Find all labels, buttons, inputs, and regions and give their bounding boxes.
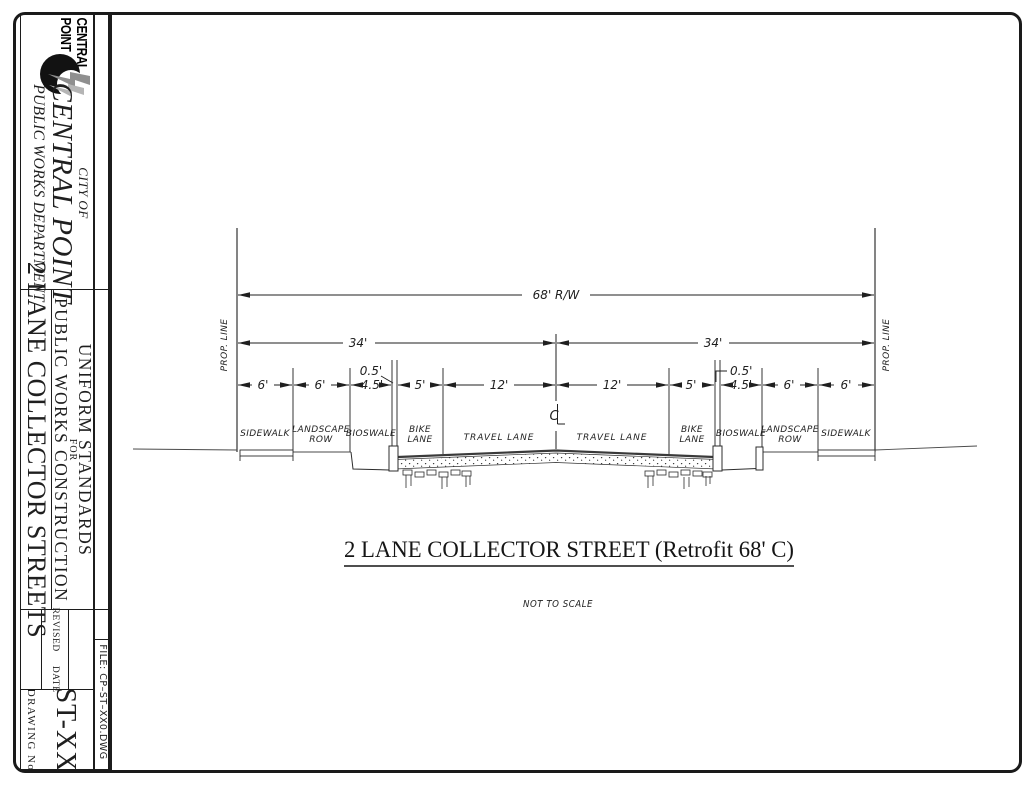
road-section bbox=[389, 446, 763, 471]
zone-label: SIDEWALK bbox=[240, 429, 290, 439]
centerline-symbol: C bbox=[549, 409, 559, 424]
bioswale-wall-right bbox=[756, 447, 763, 470]
chain-dim-9: 6' bbox=[841, 378, 852, 392]
dim-curb-right: 0.5' bbox=[730, 364, 752, 378]
chain-dim-3: 5' bbox=[415, 378, 426, 392]
zone-label: LANDSCAPE bbox=[761, 425, 819, 435]
dim-curb-left: 0.5' bbox=[360, 364, 382, 378]
zone-label: BIOSWALE bbox=[716, 429, 766, 439]
zone-label: BIOSWALE bbox=[346, 429, 396, 439]
cross-section-diagram: PROP. LINE PROP. LINE bbox=[0, 0, 1035, 785]
dim-half-right: 34' bbox=[704, 336, 723, 350]
aggregate-hatch-left bbox=[403, 470, 471, 489]
bioswale-left bbox=[351, 452, 389, 470]
prop-line-label-right: PROP. LINE bbox=[882, 319, 892, 372]
drawing-sheet: CENTRAL POINT CITY OF CENTRAL POINT PUBL… bbox=[0, 0, 1035, 785]
chain-dim-5: 12' bbox=[603, 378, 622, 392]
aggregate-hatch-right bbox=[645, 470, 712, 489]
chain-dim-0: 6' bbox=[258, 378, 269, 392]
chain-dim-7: 4.5' bbox=[730, 378, 752, 392]
curb-left bbox=[389, 446, 398, 471]
zone-label: ROW bbox=[778, 435, 802, 445]
zone-label: LANDSCAPE bbox=[292, 425, 350, 435]
zone-label: SIDEWALK bbox=[821, 429, 871, 439]
zone-label: BIKE bbox=[409, 425, 431, 435]
zone-label: ROW bbox=[309, 435, 333, 445]
zone-label: BIKE bbox=[681, 425, 703, 435]
chain-dim-8: 6' bbox=[784, 378, 795, 392]
chain-dim-6: 5' bbox=[686, 378, 697, 392]
zone-label: TRAVEL LANE bbox=[464, 433, 535, 443]
sheet-title: 2 LANE COLLECTOR STREET (Retrofit 68' C) bbox=[344, 537, 794, 562]
dim-half-left: 34' bbox=[349, 336, 368, 350]
dim-right-of-way: 68' R/W bbox=[533, 288, 581, 302]
centerline bbox=[556, 334, 565, 449]
sidewalk-slab-right bbox=[818, 450, 875, 461]
bioswale-right bbox=[722, 469, 757, 471]
zone-label: LANE bbox=[407, 435, 432, 445]
sidewalk-slab-left bbox=[240, 450, 293, 461]
chain-dim-1: 6' bbox=[315, 378, 326, 392]
zone-label: TRAVEL LANE bbox=[577, 433, 648, 443]
chain-dim-2: 4.5' bbox=[361, 378, 383, 392]
prop-line-label-left: PROP. LINE bbox=[220, 319, 230, 372]
zone-label: LANE bbox=[679, 435, 704, 445]
scale-note: NOT TO SCALE bbox=[523, 599, 593, 610]
curb-right bbox=[713, 446, 722, 471]
chain-dim-4: 12' bbox=[490, 378, 509, 392]
